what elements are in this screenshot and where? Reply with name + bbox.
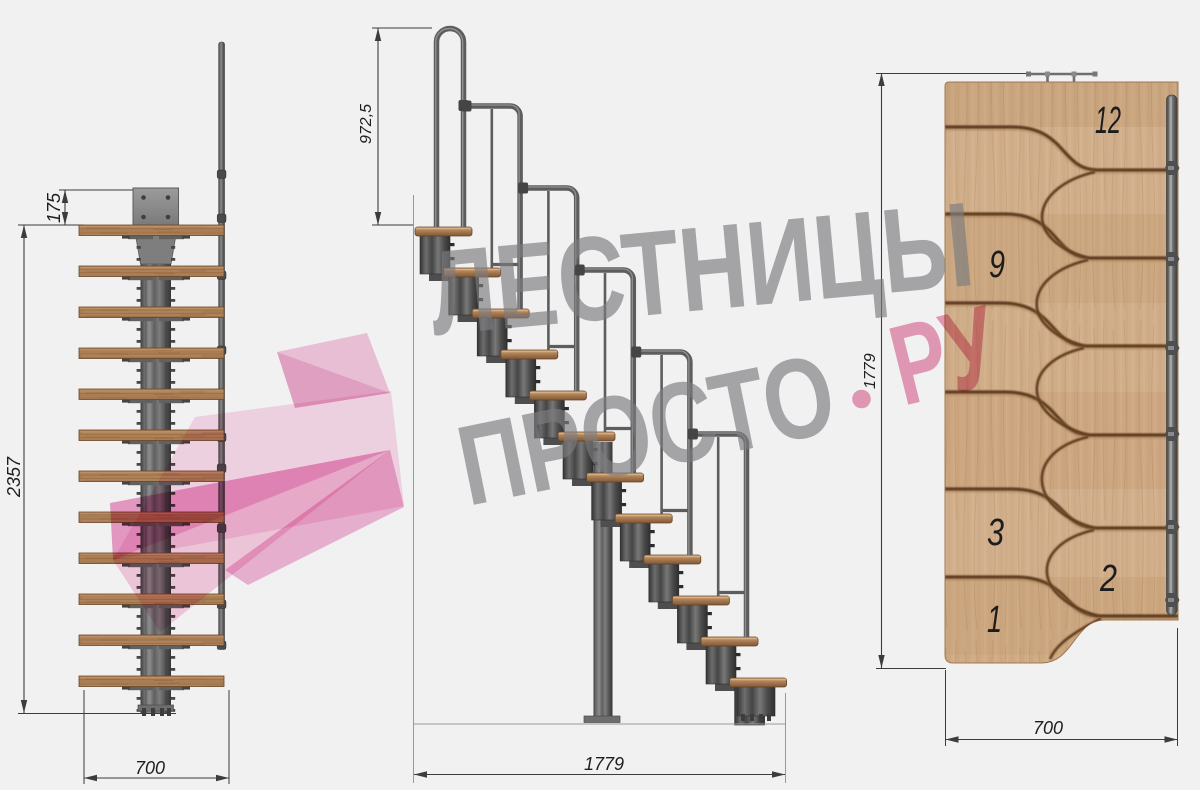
svg-text:2: 2 (1099, 558, 1117, 600)
svg-text:2357: 2357 (4, 456, 24, 498)
svg-text:700: 700 (135, 758, 165, 778)
svg-text:700: 700 (1033, 718, 1063, 738)
svg-text:1779: 1779 (584, 754, 624, 774)
svg-text:1779: 1779 (862, 353, 879, 389)
svg-text:972,5: 972,5 (358, 104, 375, 144)
svg-text:1: 1 (987, 599, 1002, 641)
svg-text:3: 3 (987, 512, 1004, 554)
svg-text:12: 12 (1095, 100, 1121, 142)
svg-text:9: 9 (989, 244, 1005, 286)
svg-text:175: 175 (44, 192, 64, 223)
